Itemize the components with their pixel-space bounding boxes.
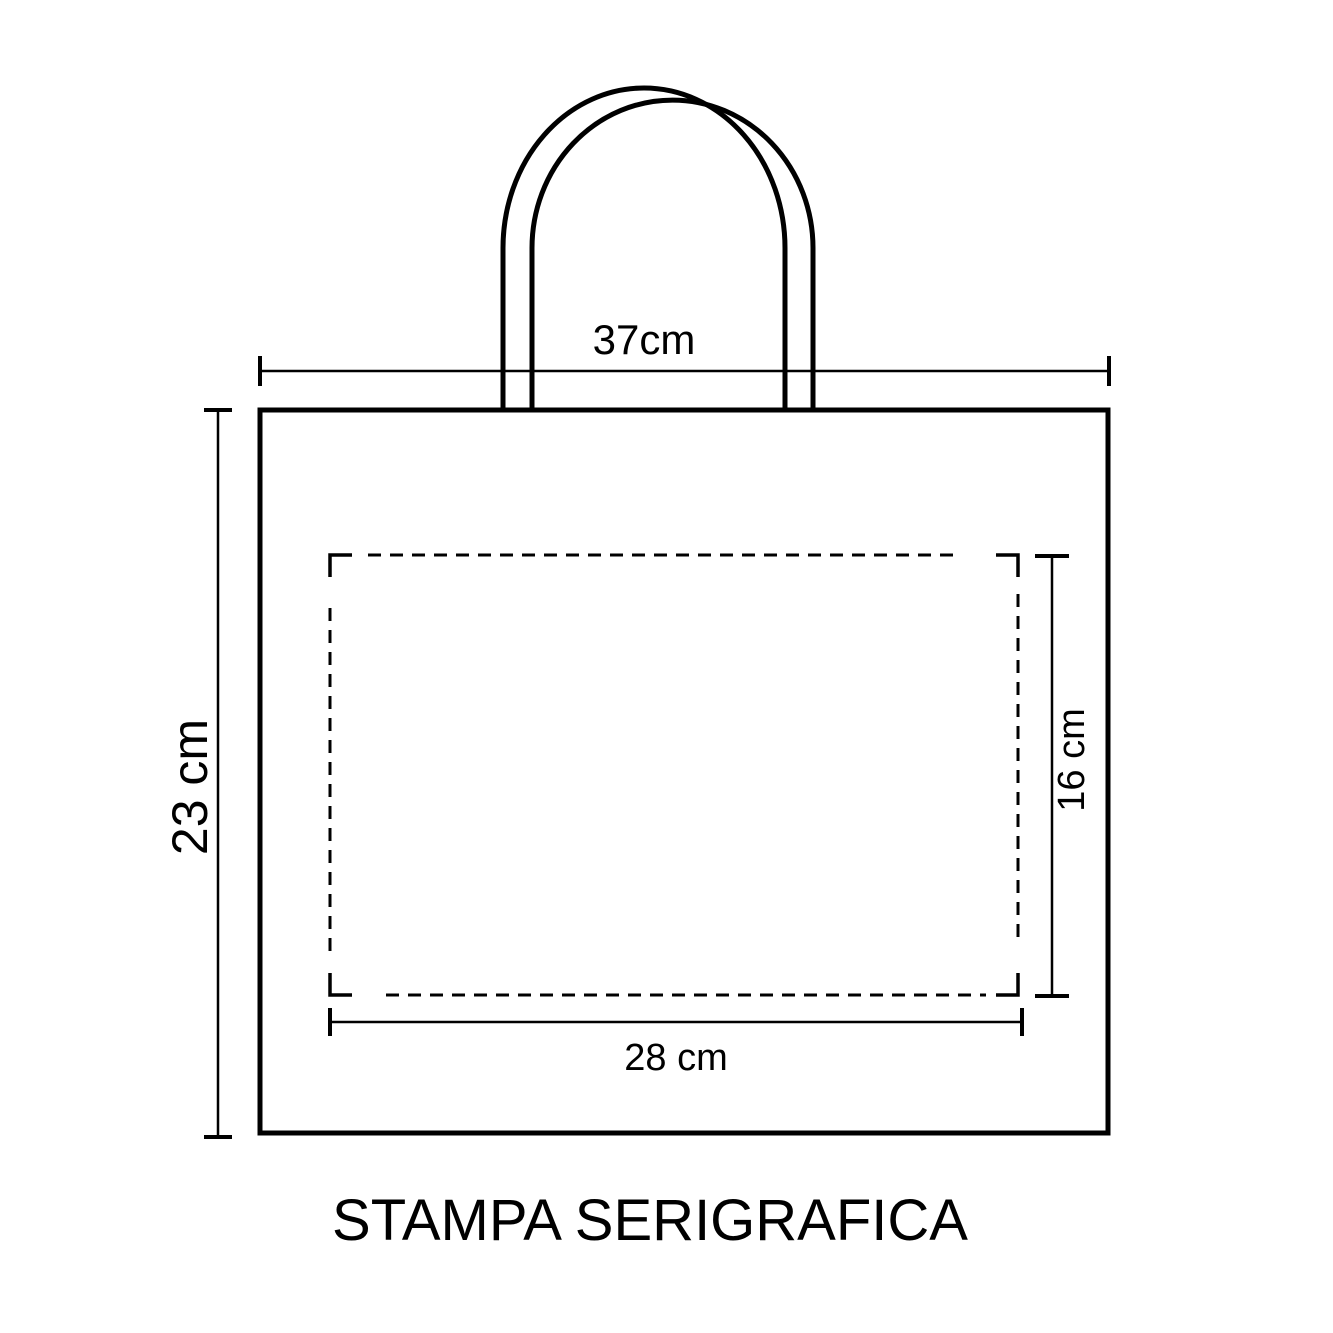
bag-width-label: 37cm: [593, 316, 696, 363]
dimension-bag-height: 23 cm: [162, 410, 232, 1137]
bag-print-spec-diagram: 37cm 23 cm 16 cm: [0, 0, 1333, 1333]
bag-height-label: 23 cm: [162, 719, 218, 855]
diagram-title: STAMPA SERIGRAFICA: [332, 1188, 968, 1253]
dimension-bag-width: 37cm: [260, 316, 1109, 386]
print-width-label: 28 cm: [624, 1037, 727, 1079]
bag-body-outline: [260, 410, 1108, 1133]
bag-handle-front: [532, 100, 813, 412]
print-height-label: 16 cm: [1051, 708, 1093, 811]
diagram-svg: 37cm 23 cm 16 cm: [0, 0, 1333, 1333]
bag-handle-back: [503, 88, 785, 412]
